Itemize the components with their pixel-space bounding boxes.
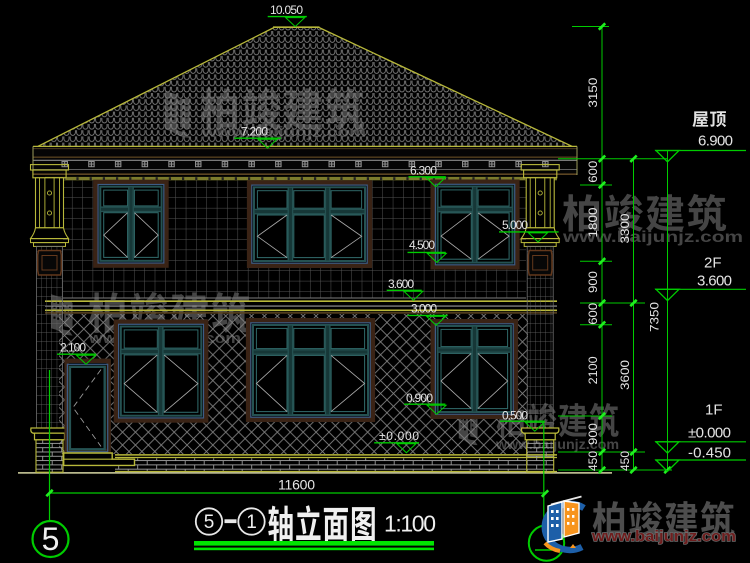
svg-text:www.baijunjz.com: www.baijunjz.com [591, 529, 736, 545]
svg-text:600: 600 [586, 160, 600, 182]
svg-text:11600: 11600 [278, 477, 315, 493]
svg-text:900: 900 [586, 271, 600, 293]
svg-text:5.000: 5.000 [502, 218, 528, 232]
svg-text:10.050: 10.050 [270, 3, 303, 17]
svg-text:3600: 3600 [618, 360, 632, 390]
svg-text:3.600: 3.600 [388, 277, 414, 291]
svg-text:900: 900 [586, 423, 600, 445]
svg-text:5: 5 [42, 521, 60, 557]
svg-text:600: 600 [586, 302, 600, 324]
svg-text:6.900: 6.900 [698, 133, 733, 150]
svg-text:6.300: 6.300 [410, 163, 437, 177]
svg-text:2.100: 2.100 [60, 340, 86, 354]
svg-text:0.900: 0.900 [406, 391, 433, 405]
svg-text:3.000: 3.000 [411, 301, 437, 315]
svg-text:2F: 2F [704, 255, 722, 272]
svg-text:1F: 1F [705, 402, 723, 419]
svg-text:±0.000: ±0.000 [688, 425, 731, 442]
svg-text:1: 1 [246, 512, 257, 533]
svg-text:7350: 7350 [648, 302, 662, 332]
svg-text:1800: 1800 [586, 207, 600, 237]
svg-text:450: 450 [618, 451, 632, 471]
svg-text:3.600: 3.600 [697, 273, 732, 290]
svg-text:±0.000: ±0.000 [379, 429, 419, 443]
svg-text:7.200: 7.200 [241, 124, 268, 138]
svg-text:5: 5 [204, 512, 215, 533]
svg-text:1:100: 1:100 [384, 511, 436, 537]
svg-text:2100: 2100 [586, 356, 600, 384]
svg-text:4.500: 4.500 [409, 238, 435, 252]
svg-text:3150: 3150 [586, 77, 600, 107]
svg-text:3300: 3300 [618, 213, 632, 243]
svg-text:-0.450: -0.450 [688, 445, 731, 462]
svg-text:450: 450 [586, 451, 600, 471]
